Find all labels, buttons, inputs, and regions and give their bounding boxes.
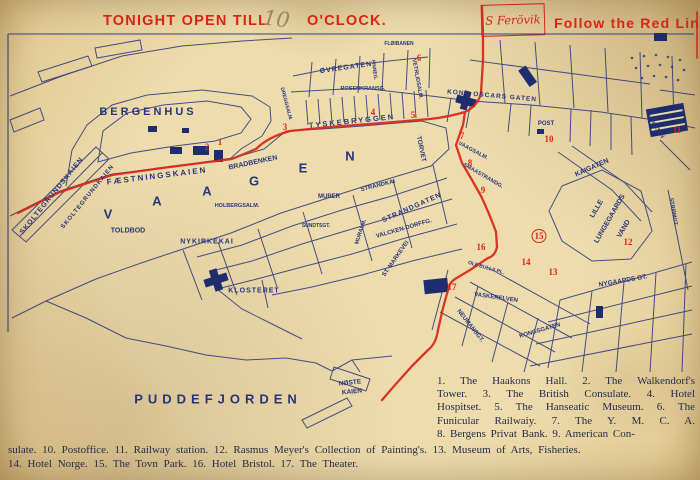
route-marker-2: 2 [205,142,210,152]
map-label: BERGENHUS [99,106,196,118]
route-marker-1: 1 [218,137,223,147]
route-marker-14: 14 [522,257,531,267]
legend-line: 1. The Haakons Hall. 2. The Walkendorf's [437,375,695,388]
legend-line: Hospitset. 5. The Hanseatic Museum. 6. T… [437,401,695,414]
map-label: N [345,149,354,164]
map-label: POST [538,121,554,127]
postcard-map: TONIGHT OPEN TILL 10 O'CLOCK. S Ferövik … [0,0,700,480]
route-marker-7: 7 [460,131,465,141]
route-marker-11: 11 [673,125,682,135]
route-marker-3: 3 [283,122,288,132]
map-label: TOLDBOD [111,228,145,235]
map-label: MURER [318,194,340,200]
route-marker-13: 13 [549,267,558,277]
legend-line: 8. Bergens Privat Bank. 9. American Con- [437,428,695,441]
map-label: HOLBERGSALM. [215,203,260,209]
route-marker-6: 6 [417,53,422,63]
map-label: A [202,184,211,199]
map-label: FLØIBANEN [384,41,413,47]
legend-line: Funicular Railwaiy. 7. The Y. M. C. A. [437,415,695,428]
route-marker-9: 9 [481,185,486,195]
map-label: A [152,194,161,209]
map-label: E [299,161,308,176]
route-marker-12: 12 [624,237,633,247]
legend-line: 14. Hotel Norge. 15. The Tovn Park. 16. … [8,458,696,472]
route-marker-5: 5 [411,110,416,120]
park-dots [631,54,686,82]
route-marker-16: 16 [477,242,486,252]
legend-column: 1. The Haakons Hall. 2. The Walkendorf's… [437,375,695,441]
legend-line: sulate. 10. Postoffice. 11. Railway stat… [8,444,696,458]
map-label: KLOSTERET [228,288,279,295]
route-marker-10: 10 [545,134,554,144]
route-marker-8: 8 [468,158,473,168]
route-marker-15: 15 [532,229,547,243]
map-label: SUNDTSGT. [302,223,330,229]
legend-line: Tower. 3. The British Consulate. 4. Hote… [437,388,695,401]
theater-building [423,278,448,294]
route-marker-17: 17 [448,282,457,292]
map-label: NYKIRKEKAI [180,239,234,246]
map-label: G [249,174,259,189]
map-label: V [104,207,113,222]
nykirken-church [201,266,231,294]
map-label: ROSENKRANSG. [341,86,386,92]
legend-bottom: sulate. 10. Postoffice. 11. Railway stat… [8,444,696,471]
map-label: PUDDEFJORDEN [134,392,302,407]
route-marker-4: 4 [371,107,376,117]
